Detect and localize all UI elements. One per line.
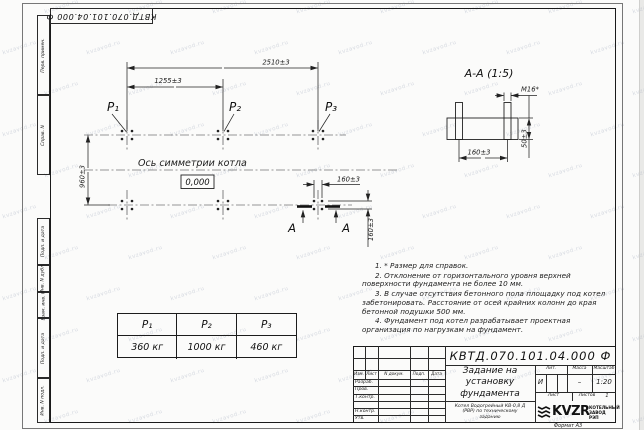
dim-bolt-spacing-y: 160±3 (367, 218, 375, 241)
lit-header: Лит. (535, 365, 567, 374)
load-table-value-p1: 360 кг (118, 336, 177, 359)
sign-row-utv: Утв. (353, 415, 378, 423)
load-table: P₁ P₂ P₃ 360 кг 1000 кг 460 кг (117, 313, 297, 358)
load-table-value-p3: 460 кг (237, 336, 296, 359)
note-1: 1. * Размер для справок. (362, 262, 612, 271)
section-arrow-letter-right: А (341, 221, 350, 235)
document-designation: КВТД.070.101.04.000 Ф (445, 346, 616, 365)
kvzr-logo-spring-icon (537, 405, 551, 420)
format-note: Формат А3 (520, 423, 616, 429)
dim-bolt-spacing-x: 160±3 (337, 176, 360, 184)
col-header-podp: Подп. (410, 370, 428, 379)
thread-size-label: М16* (521, 86, 540, 94)
section-arrow-letter-left: А (287, 221, 296, 235)
section-cut-marks: А А (287, 207, 350, 236)
plan-centerlines (84, 120, 398, 220)
load-table-header-p1: P₁ (118, 314, 177, 336)
plan-dimensions: 2510±3 1255±3 960±3 160±3 160±3 (79, 59, 376, 248)
mass-header: Масса (567, 365, 592, 374)
sheet-header: Лист (535, 392, 572, 401)
note-3: 3. В случае отсутствия бетонного пола пл… (362, 290, 612, 316)
elevation-mark: 0,000 (185, 178, 209, 188)
sign-row-tkontr: Т.контр. (353, 394, 378, 401)
product-description: Котел Водогрейный КВ-0,8 Д (РВР) по техн… (445, 401, 535, 423)
symmetry-axis-annotation: Ось симметрии котла 0,000 (138, 158, 247, 189)
col-header-data: Дата (428, 370, 445, 379)
sheet-right-edge (639, 0, 640, 430)
sign-row-prov: Пров. (353, 386, 378, 394)
kvzr-logo-text: KVZR (552, 404, 590, 420)
col-header-izm: Изм. (353, 370, 365, 379)
document-title: Задание на установку фундамента (445, 365, 535, 401)
load-point-label-p2: P₂ (229, 100, 241, 114)
load-point-labels: P₁ P₂ P₃ (107, 100, 337, 132)
anchor-bolt-left (456, 103, 463, 140)
kvzr-logo-subtext: КОТЕЛЬНЫЙ ЗАВОД РЭП (589, 405, 616, 420)
sign-row-nkontr: Н.контр. (353, 408, 378, 415)
load-point-label-p1: P₁ (107, 100, 119, 114)
note-2: 2. Отклонение от горизонтального уровня … (362, 272, 612, 289)
load-table-value-p2: 1000 кг (177, 336, 236, 359)
dim-depth: 960±3 (79, 165, 87, 188)
sheets-header: Листов (572, 392, 602, 401)
boiler-symmetry-axis-label: Ось симметрии котла (138, 158, 247, 169)
scale-header: Масштаб (592, 365, 616, 374)
sign-row-razrab: Разраб. (353, 379, 378, 386)
concrete-foundation-block (447, 118, 518, 140)
col-header-list: Лист (365, 370, 378, 379)
load-table-header-p3: P₃ (237, 314, 296, 336)
lit-value: И (535, 374, 546, 392)
section-view-a-a: А-А (1:5) М16* 50±3 160±3 (447, 67, 540, 162)
section-dim-bolt-spacing: 160±3 (468, 149, 491, 157)
mass-value: – (567, 374, 592, 392)
technical-notes: 1. * Размер для справок. 2. Отклонение о… (362, 262, 612, 336)
load-table-header-p2: P₂ (177, 314, 236, 336)
dim-half-width: 1255±3 (154, 77, 181, 85)
load-point-label-p3: P₃ (325, 100, 337, 114)
anchor-bolt-right (504, 103, 511, 140)
section-dim-embed-depth: 50±3 (521, 129, 529, 148)
drawing-sheet: kvzavod.rukvzavod.rukvzavod.rukvzavod.ru… (0, 0, 640, 430)
sheets-value: 1 (600, 392, 614, 401)
col-header-n-dokum: N докум. (378, 370, 410, 379)
section-view-title: А-А (1:5) (464, 67, 514, 80)
dim-total-width: 2510±3 (262, 59, 289, 67)
scale-value: 1:20 (592, 374, 616, 392)
note-4: 4. Фундамент под котел разрабатывает про… (362, 317, 612, 334)
